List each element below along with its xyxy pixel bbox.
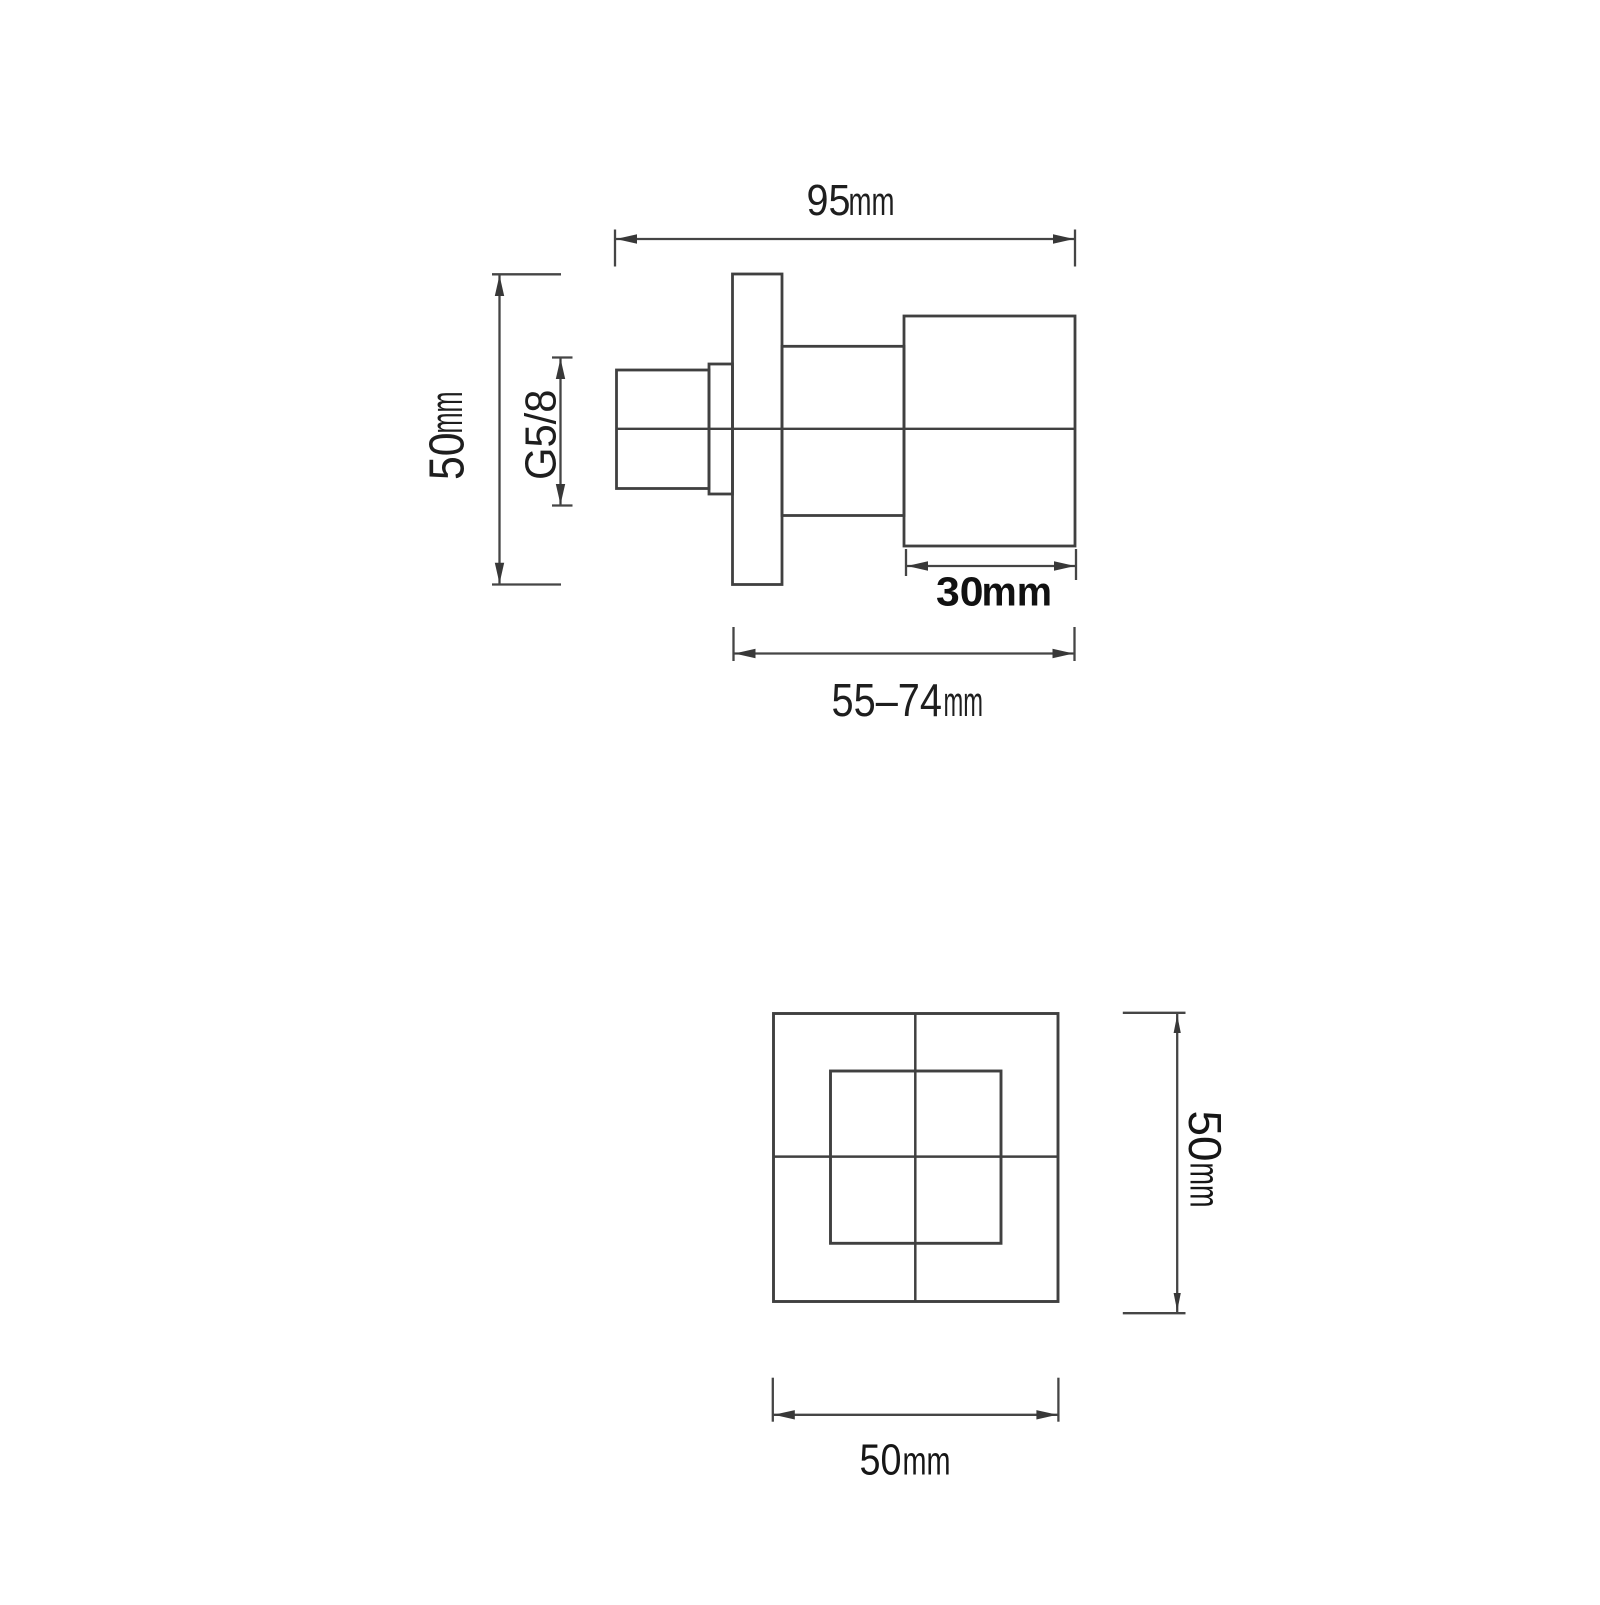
svg-text:mm: mm: [982, 569, 1053, 615]
svg-text:50: 50: [860, 1435, 902, 1484]
svg-text:mm: mm: [849, 180, 895, 224]
svg-text:mm: mm: [944, 678, 984, 725]
svg-text:mm: mm: [1181, 1163, 1228, 1208]
svg-text:30: 30: [936, 569, 984, 615]
svg-text:95: 95: [807, 176, 851, 225]
svg-text:G5/8: G5/8: [517, 390, 566, 481]
svg-text:mm: mm: [421, 392, 472, 434]
svg-text:50: 50: [421, 433, 475, 481]
svg-text:mm: mm: [903, 1439, 951, 1483]
svg-text:55–74: 55–74: [832, 674, 943, 726]
svg-text:50: 50: [1179, 1111, 1231, 1162]
